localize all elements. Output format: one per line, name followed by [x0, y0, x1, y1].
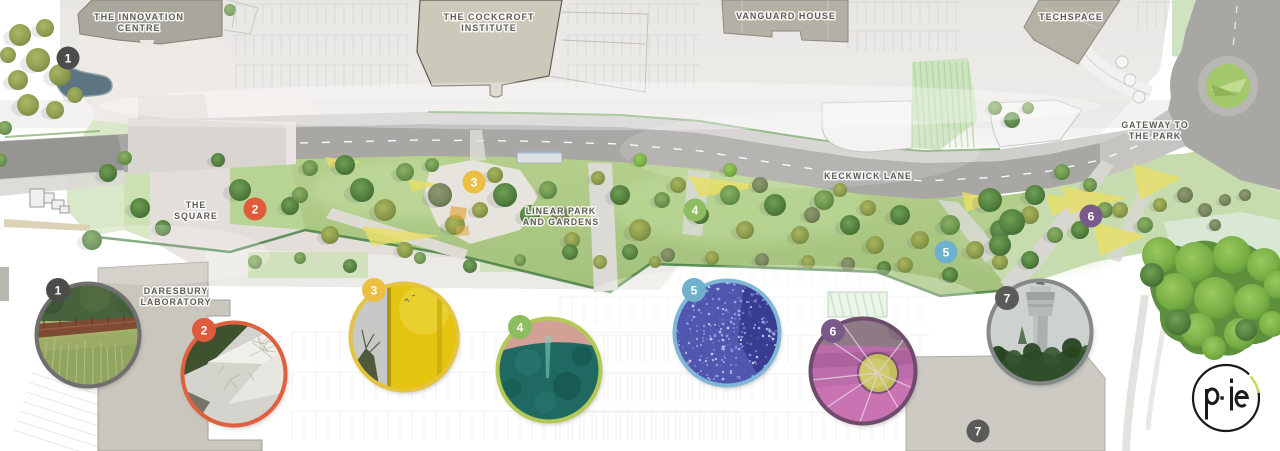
svg-text:4: 4	[692, 204, 699, 218]
svg-text:THE PARK: THE PARK	[1129, 131, 1181, 141]
svg-text:TECHSPACE: TECHSPACE	[1039, 12, 1103, 22]
svg-text:THE COCKCROFT: THE COCKCROFT	[444, 12, 535, 22]
svg-text:5: 5	[691, 284, 698, 298]
svg-text:1: 1	[55, 284, 62, 298]
svg-text:2: 2	[201, 324, 208, 338]
svg-text:4: 4	[517, 321, 524, 335]
svg-text:7: 7	[975, 425, 982, 439]
svg-text:AND GARDENS: AND GARDENS	[523, 217, 600, 227]
svg-text:INSTITUTE: INSTITUTE	[461, 23, 517, 33]
svg-text:5: 5	[943, 246, 950, 260]
svg-text:SQUARE: SQUARE	[174, 211, 218, 221]
svg-text:3: 3	[471, 176, 478, 190]
svg-text:KECKWICK LANE: KECKWICK LANE	[824, 171, 912, 181]
svg-text:THE INNOVATION: THE INNOVATION	[94, 12, 184, 22]
svg-text:1: 1	[65, 52, 72, 66]
svg-text:6: 6	[1088, 210, 1095, 224]
svg-text:3: 3	[371, 284, 378, 298]
svg-text:THE: THE	[186, 200, 207, 210]
svg-text:CENTRE: CENTRE	[117, 23, 160, 33]
svg-text:7: 7	[1004, 292, 1011, 306]
svg-text:GATEWAY TO: GATEWAY TO	[1121, 120, 1188, 130]
svg-text:DARESBURY: DARESBURY	[144, 286, 208, 296]
svg-text:2: 2	[252, 203, 259, 217]
svg-text:VANGUARD HOUSE: VANGUARD HOUSE	[736, 11, 836, 21]
svg-text:6: 6	[830, 325, 837, 339]
svg-text:LABORATORY: LABORATORY	[141, 297, 212, 307]
svg-text:LINEAR PARK: LINEAR PARK	[526, 206, 596, 216]
